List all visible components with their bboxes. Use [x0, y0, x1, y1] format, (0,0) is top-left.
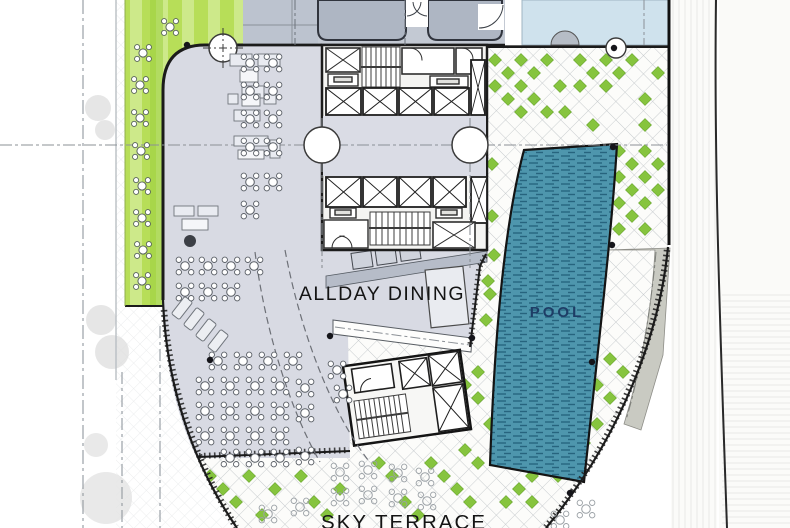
secondary-core	[343, 350, 471, 446]
column-circle	[452, 127, 488, 163]
column-dot-icon	[610, 144, 616, 150]
stair-icon	[354, 394, 411, 439]
column-dot-icon	[207, 357, 213, 363]
column-dot-icon	[184, 42, 190, 48]
column-dot-icon	[567, 490, 573, 496]
dining-label: ALLDAY DINING	[299, 283, 465, 305]
facade-mullion-band	[671, 0, 717, 528]
water-feature	[505, 0, 670, 46]
floor-plan-canvas: POOL	[0, 0, 790, 528]
column-circle	[304, 127, 340, 163]
column-dot-icon	[589, 359, 595, 365]
elevator-shaft	[326, 48, 360, 72]
store-room	[351, 364, 394, 393]
floor-plan-page: POOL	[0, 0, 790, 528]
column-dot-icon	[611, 45, 617, 51]
toilet-rooms	[324, 220, 368, 248]
column-dot-icon	[609, 242, 615, 248]
tower-above-outline	[243, 0, 505, 45]
site-right-hatch	[722, 290, 790, 528]
column-dot-icon	[469, 335, 475, 341]
column-dot-icon	[327, 333, 333, 339]
terrace-label: SKY TERRACE	[321, 511, 487, 528]
stair-bottom	[370, 212, 430, 245]
service-room-x	[433, 222, 475, 248]
stair-top	[362, 47, 400, 87]
room-top-right	[402, 48, 482, 74]
pool-label: POOL	[530, 304, 585, 321]
